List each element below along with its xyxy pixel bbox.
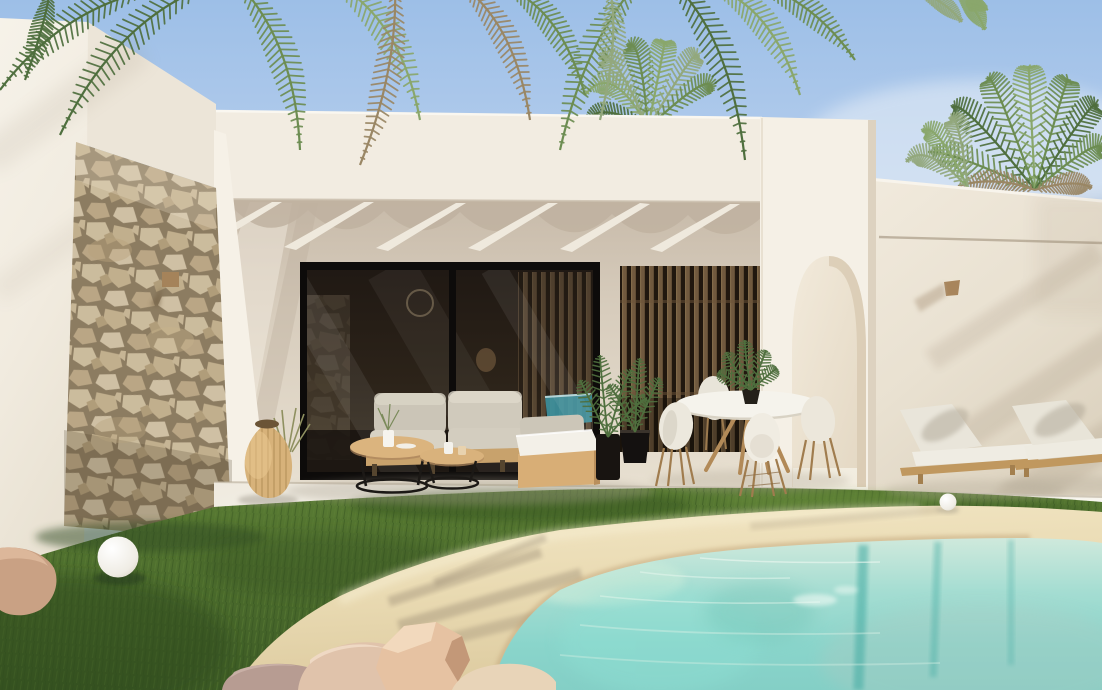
chaise [516, 430, 601, 488]
scene-canvas [0, 0, 1102, 690]
right-wall-lamp [944, 280, 960, 296]
parapet [214, 111, 762, 202]
scene [0, 0, 1102, 690]
stone-wall-lamp [162, 272, 179, 287]
stone-pillar [64, 142, 232, 540]
